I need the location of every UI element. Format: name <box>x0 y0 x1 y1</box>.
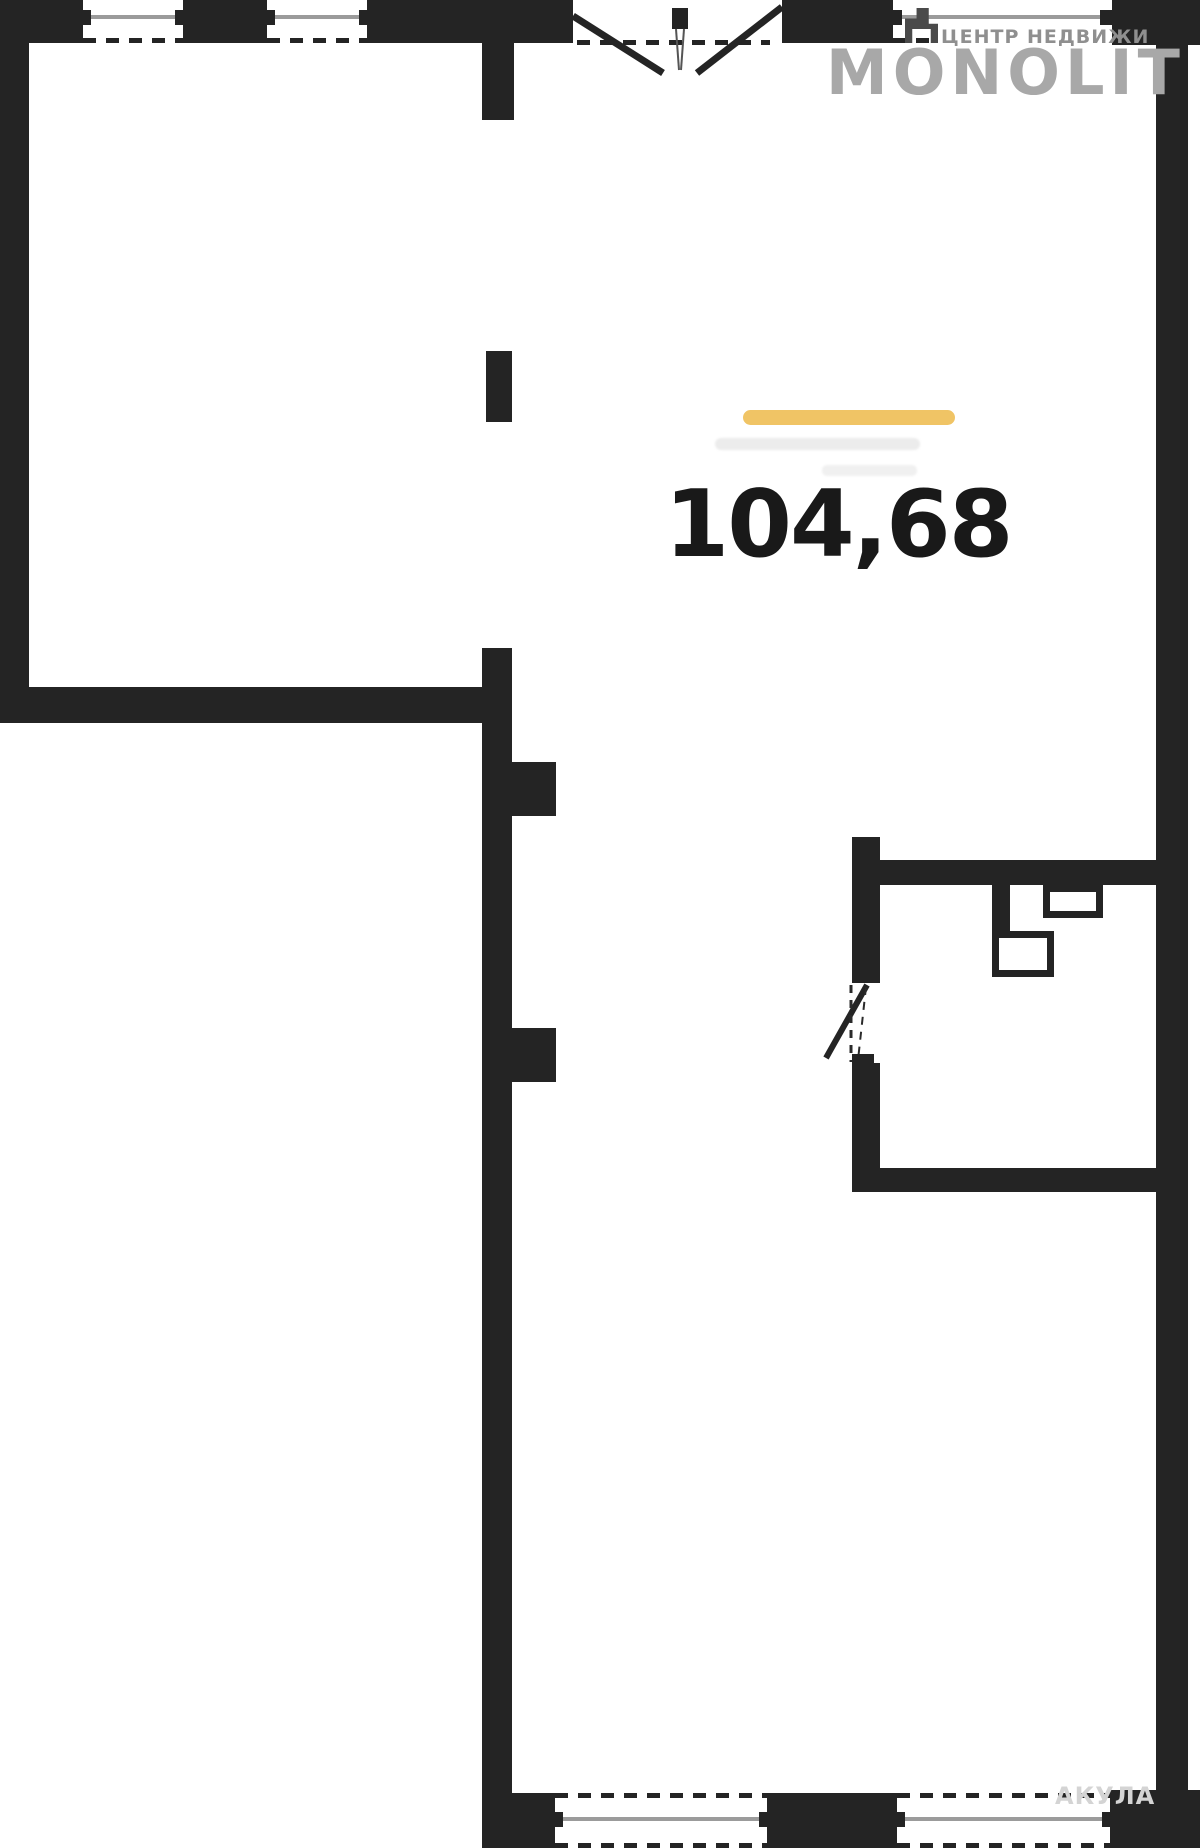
window-jamb <box>359 10 372 25</box>
wall-center-stub-right-2 <box>512 1028 556 1082</box>
wall-bottom-pier <box>767 1793 897 1848</box>
wall-center-stub-right-1 <box>512 762 556 816</box>
window-jamb <box>550 1812 563 1827</box>
bathroom-wall-top <box>880 860 1158 885</box>
window-sill-dashed <box>555 1843 767 1848</box>
erased-text-smudge <box>715 438 920 450</box>
window-jamb <box>759 1812 772 1827</box>
area-value: 104,68 <box>638 470 1038 578</box>
wall-center-stub-upper <box>486 351 512 422</box>
window-sill-dashed <box>267 38 367 43</box>
wall-top-left-corner <box>0 0 83 43</box>
window-glass <box>267 15 367 19</box>
window-sill-dashed <box>83 38 183 43</box>
wall-top-pier <box>183 0 267 43</box>
window-jamb <box>892 1812 905 1827</box>
bathroom-wall-left-upper <box>852 837 880 983</box>
window-jamb <box>1100 10 1113 25</box>
window-jamb <box>1102 1812 1115 1827</box>
wall-middle-horizontal <box>0 687 482 723</box>
agent-watermark: АКУЛА <box>1055 1782 1155 1810</box>
window-glass <box>555 1817 767 1821</box>
wall-right-outer <box>1156 43 1188 1793</box>
window-jamb <box>78 10 91 25</box>
window-glass <box>897 1817 1110 1821</box>
window-sill-dashed <box>555 1793 767 1798</box>
window-jamb <box>889 10 902 25</box>
window-sill-dashed <box>897 1843 1110 1848</box>
brand-logo-text: MONOLIT <box>826 42 1185 104</box>
wall-left-outer <box>0 0 29 723</box>
floor-plan-canvas: 104,68 ЦЕНТР НЕДВИЖИ MONOLIT АКУЛА <box>0 0 1200 1848</box>
window-glass <box>83 15 183 19</box>
wall-top-block-left-of-door <box>367 0 573 43</box>
window-jamb <box>175 10 188 25</box>
wall-top-stem <box>482 40 514 120</box>
area-accent-bar <box>743 410 955 425</box>
bathroom-wall-bottom <box>875 1168 1158 1192</box>
duct-box-upper <box>1043 885 1103 918</box>
window-jamb <box>262 10 275 25</box>
bathroom-door <box>810 975 890 1070</box>
wall-center-vertical <box>482 648 512 1793</box>
duct-connector <box>992 885 1010 933</box>
duct-box-lower <box>992 931 1054 977</box>
wall-bottom-left-corner <box>482 1793 555 1848</box>
double-entry-door <box>560 0 800 95</box>
